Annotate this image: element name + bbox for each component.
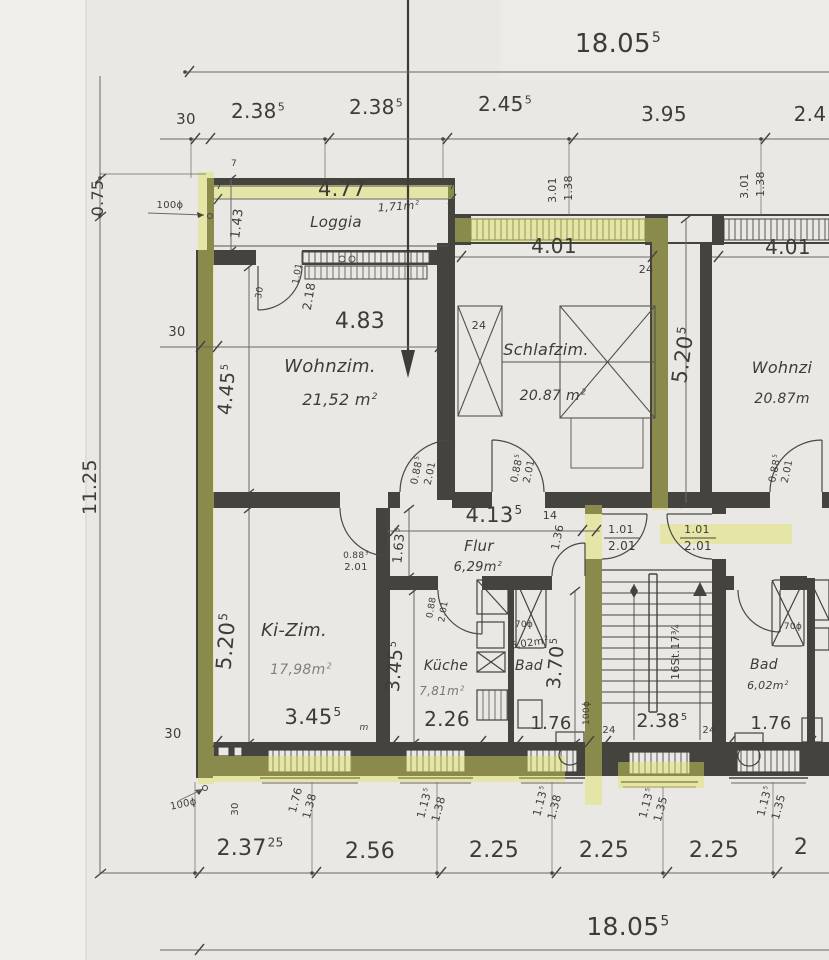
label-overall-bottom: 18.055	[586, 912, 669, 941]
label-kueche-name: Küche	[424, 658, 468, 674]
label-wohnzi-r-name: Wohnzi	[752, 358, 813, 377]
label-kueche-area: 7,81m2	[419, 684, 465, 698]
label-toprow-24cut: 2.4	[794, 102, 827, 126]
label-wall-24-b: 24	[472, 319, 487, 332]
label-overall-top: 18.055	[575, 29, 661, 59]
label-kizim-name: Ki-Zim.	[261, 620, 327, 641]
label-dim-401-l: 4.01	[531, 234, 577, 258]
label-toprow-30: 30	[176, 110, 196, 128]
label-wohnzi-r-area: 20.87m	[754, 391, 810, 407]
label-kizim-area: 17,98m2	[270, 662, 332, 678]
label-wohnzim-area: 21,52 m2	[302, 390, 378, 409]
label-bad-r-name: Bad	[750, 657, 778, 673]
label-dim-176-r: 1.76	[750, 713, 791, 734]
label-wallmark-7a: 7	[231, 159, 237, 169]
label-left-1125: 11.25	[79, 459, 101, 515]
label-bad-r-area: 6,02m2	[747, 679, 789, 692]
label-entr-r-101: 1.01	[684, 523, 710, 536]
floor-plan-page: Hand-drawn floor plan scan – apartment l…	[0, 0, 829, 960]
label-win-r-301: 3.01	[738, 173, 751, 199]
label-dim-176-l: 1.76	[530, 713, 571, 734]
label-wohnzim-name: Wohnzim.	[284, 356, 376, 377]
label-dim-226: 2.26	[424, 707, 470, 731]
label-wall-14: 14	[543, 509, 558, 522]
label-bad-l-name: Bad	[515, 658, 543, 674]
label-loggia-name: Loggia	[310, 213, 362, 231]
label-botrow-225a: 2.25	[469, 838, 519, 863]
label-wallmark-7c: 7	[449, 182, 455, 192]
label-bad-r-70phi: 70ϕ	[784, 622, 802, 632]
label-botrow-2cut: 2	[794, 835, 808, 860]
label-schlafzim-area: 20.87 m2	[520, 388, 587, 404]
label-dim-238-st: 2.385	[636, 710, 687, 732]
label-loggia-477: 4.77	[318, 177, 366, 201]
label-bl-30: 30	[230, 802, 241, 815]
label-schlafzim-name: Schlafzim.	[503, 340, 589, 359]
label-left-30-mid: 30	[168, 325, 185, 340]
label-dim-401-r: 4.01	[765, 235, 811, 259]
label-wall-24-st-r: 24	[702, 725, 715, 736]
label-botrow-256: 2.56	[345, 839, 395, 864]
label-dim-345-m: m	[359, 723, 368, 733]
label-win-l-138: 1.38	[562, 175, 575, 201]
label-stairs-note: 16St.17¾	[669, 624, 682, 680]
label-wall-24-a: 24	[639, 263, 654, 276]
label-left-100phi: 100ϕ	[157, 200, 184, 211]
label-left-30-low: 30	[164, 727, 181, 742]
label-win-l-301: 3.01	[546, 177, 559, 203]
floor-plan-svg: Hand-drawn floor plan scan – apartment l…	[0, 0, 829, 960]
label-bad-l-70phi: 70ϕ	[515, 620, 533, 630]
label-mid-100phi: 100ϕ	[582, 701, 592, 725]
label-flur-area: 6,29m2	[454, 560, 503, 575]
label-botrow-225c: 2.25	[689, 838, 739, 863]
label-entr-r-201: 2.01	[684, 539, 712, 553]
label-entr-l-201: 2.01	[608, 539, 636, 553]
label-wall-24-st-l: 24	[602, 725, 615, 736]
label-loggiadoor-30: 30	[254, 286, 266, 300]
label-dim-483: 4.83	[335, 309, 385, 334]
label-door-kz-201: 2.01	[344, 562, 367, 573]
label-left-075: 0.75	[88, 180, 107, 217]
label-win-r-138: 1.38	[754, 171, 767, 197]
label-botrow-225b: 2.25	[579, 838, 629, 863]
label-toprow-395: 3.95	[641, 102, 687, 126]
label-flur-name: Flur	[464, 537, 494, 555]
label-entr-l-101: 1.01	[608, 523, 634, 536]
label-wallmark-7b: 7	[216, 182, 222, 192]
